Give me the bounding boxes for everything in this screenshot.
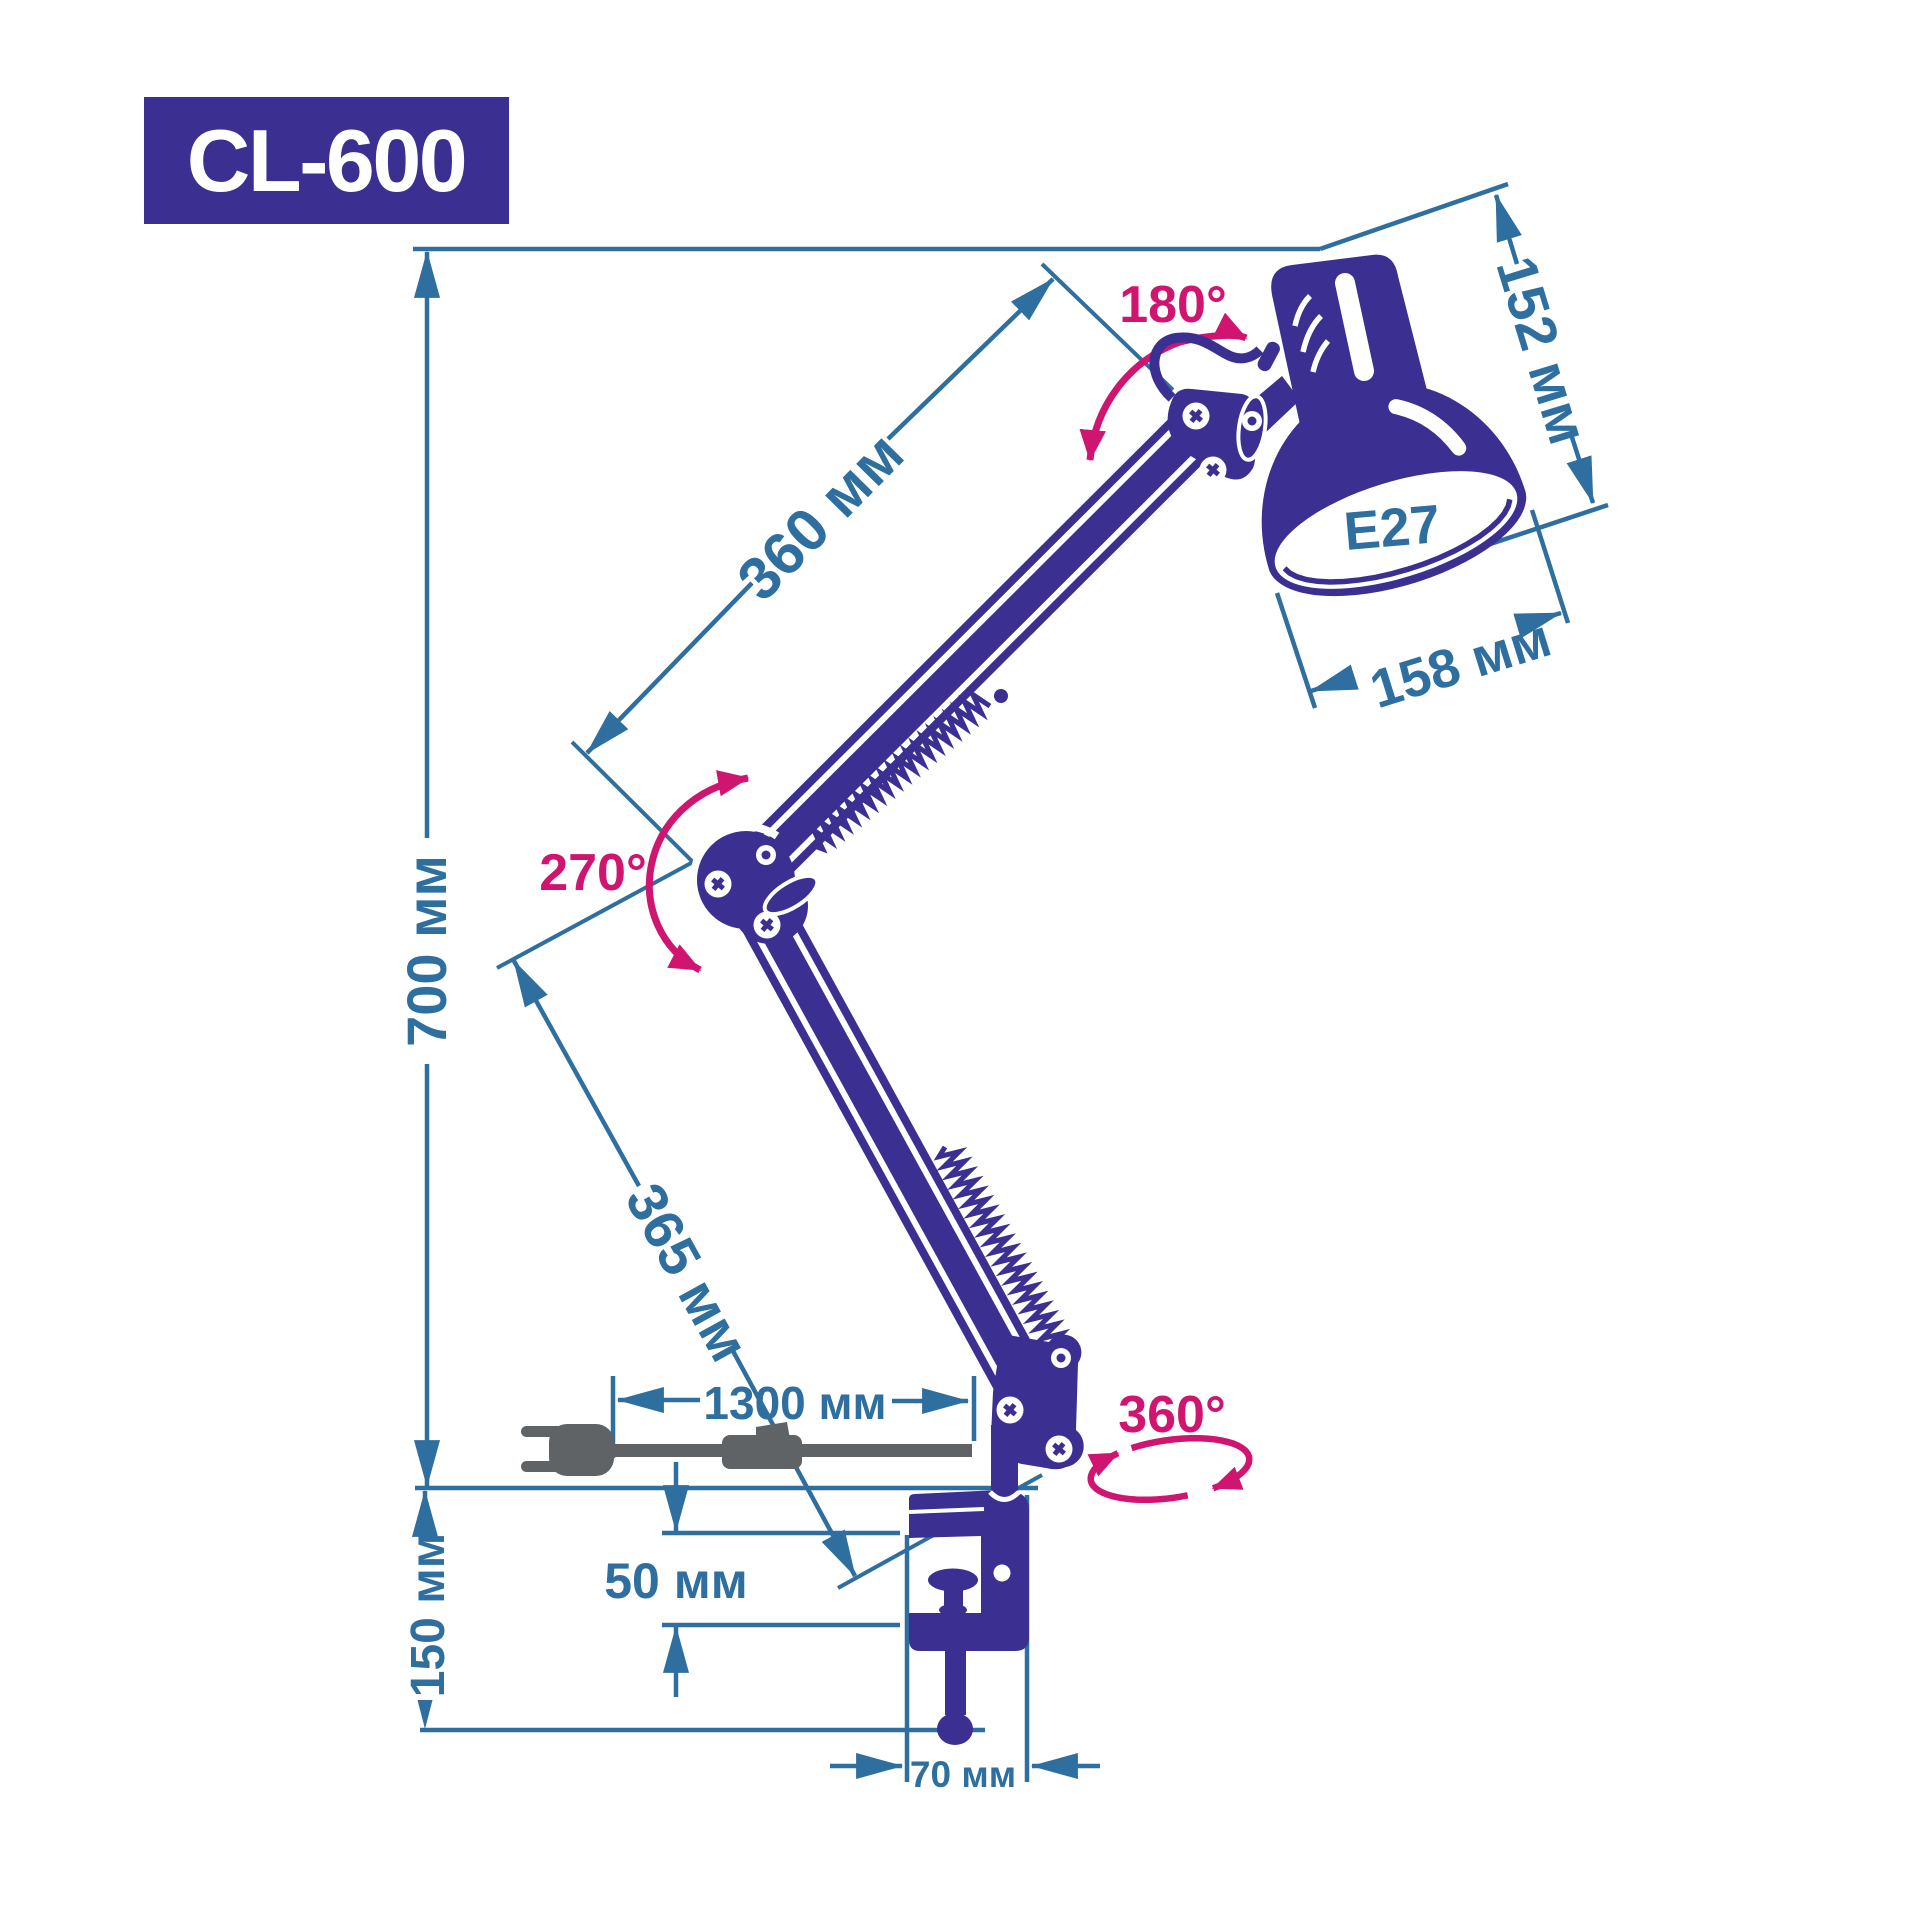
svg-text:E27: E27 — [1342, 494, 1443, 562]
svg-text:70 мм: 70 мм — [910, 1754, 1016, 1795]
svg-text:180°: 180° — [1119, 276, 1227, 334]
svg-text:270°: 270° — [539, 844, 647, 902]
svg-text:CL-600: CL-600 — [187, 111, 465, 210]
svg-text:700 мм: 700 мм — [395, 855, 458, 1047]
svg-text:150 мм: 150 мм — [402, 1533, 455, 1697]
svg-text:1300 мм: 1300 мм — [703, 1377, 886, 1429]
svg-text:50 мм: 50 мм — [604, 1553, 747, 1609]
svg-text:360°: 360° — [1118, 1386, 1226, 1444]
